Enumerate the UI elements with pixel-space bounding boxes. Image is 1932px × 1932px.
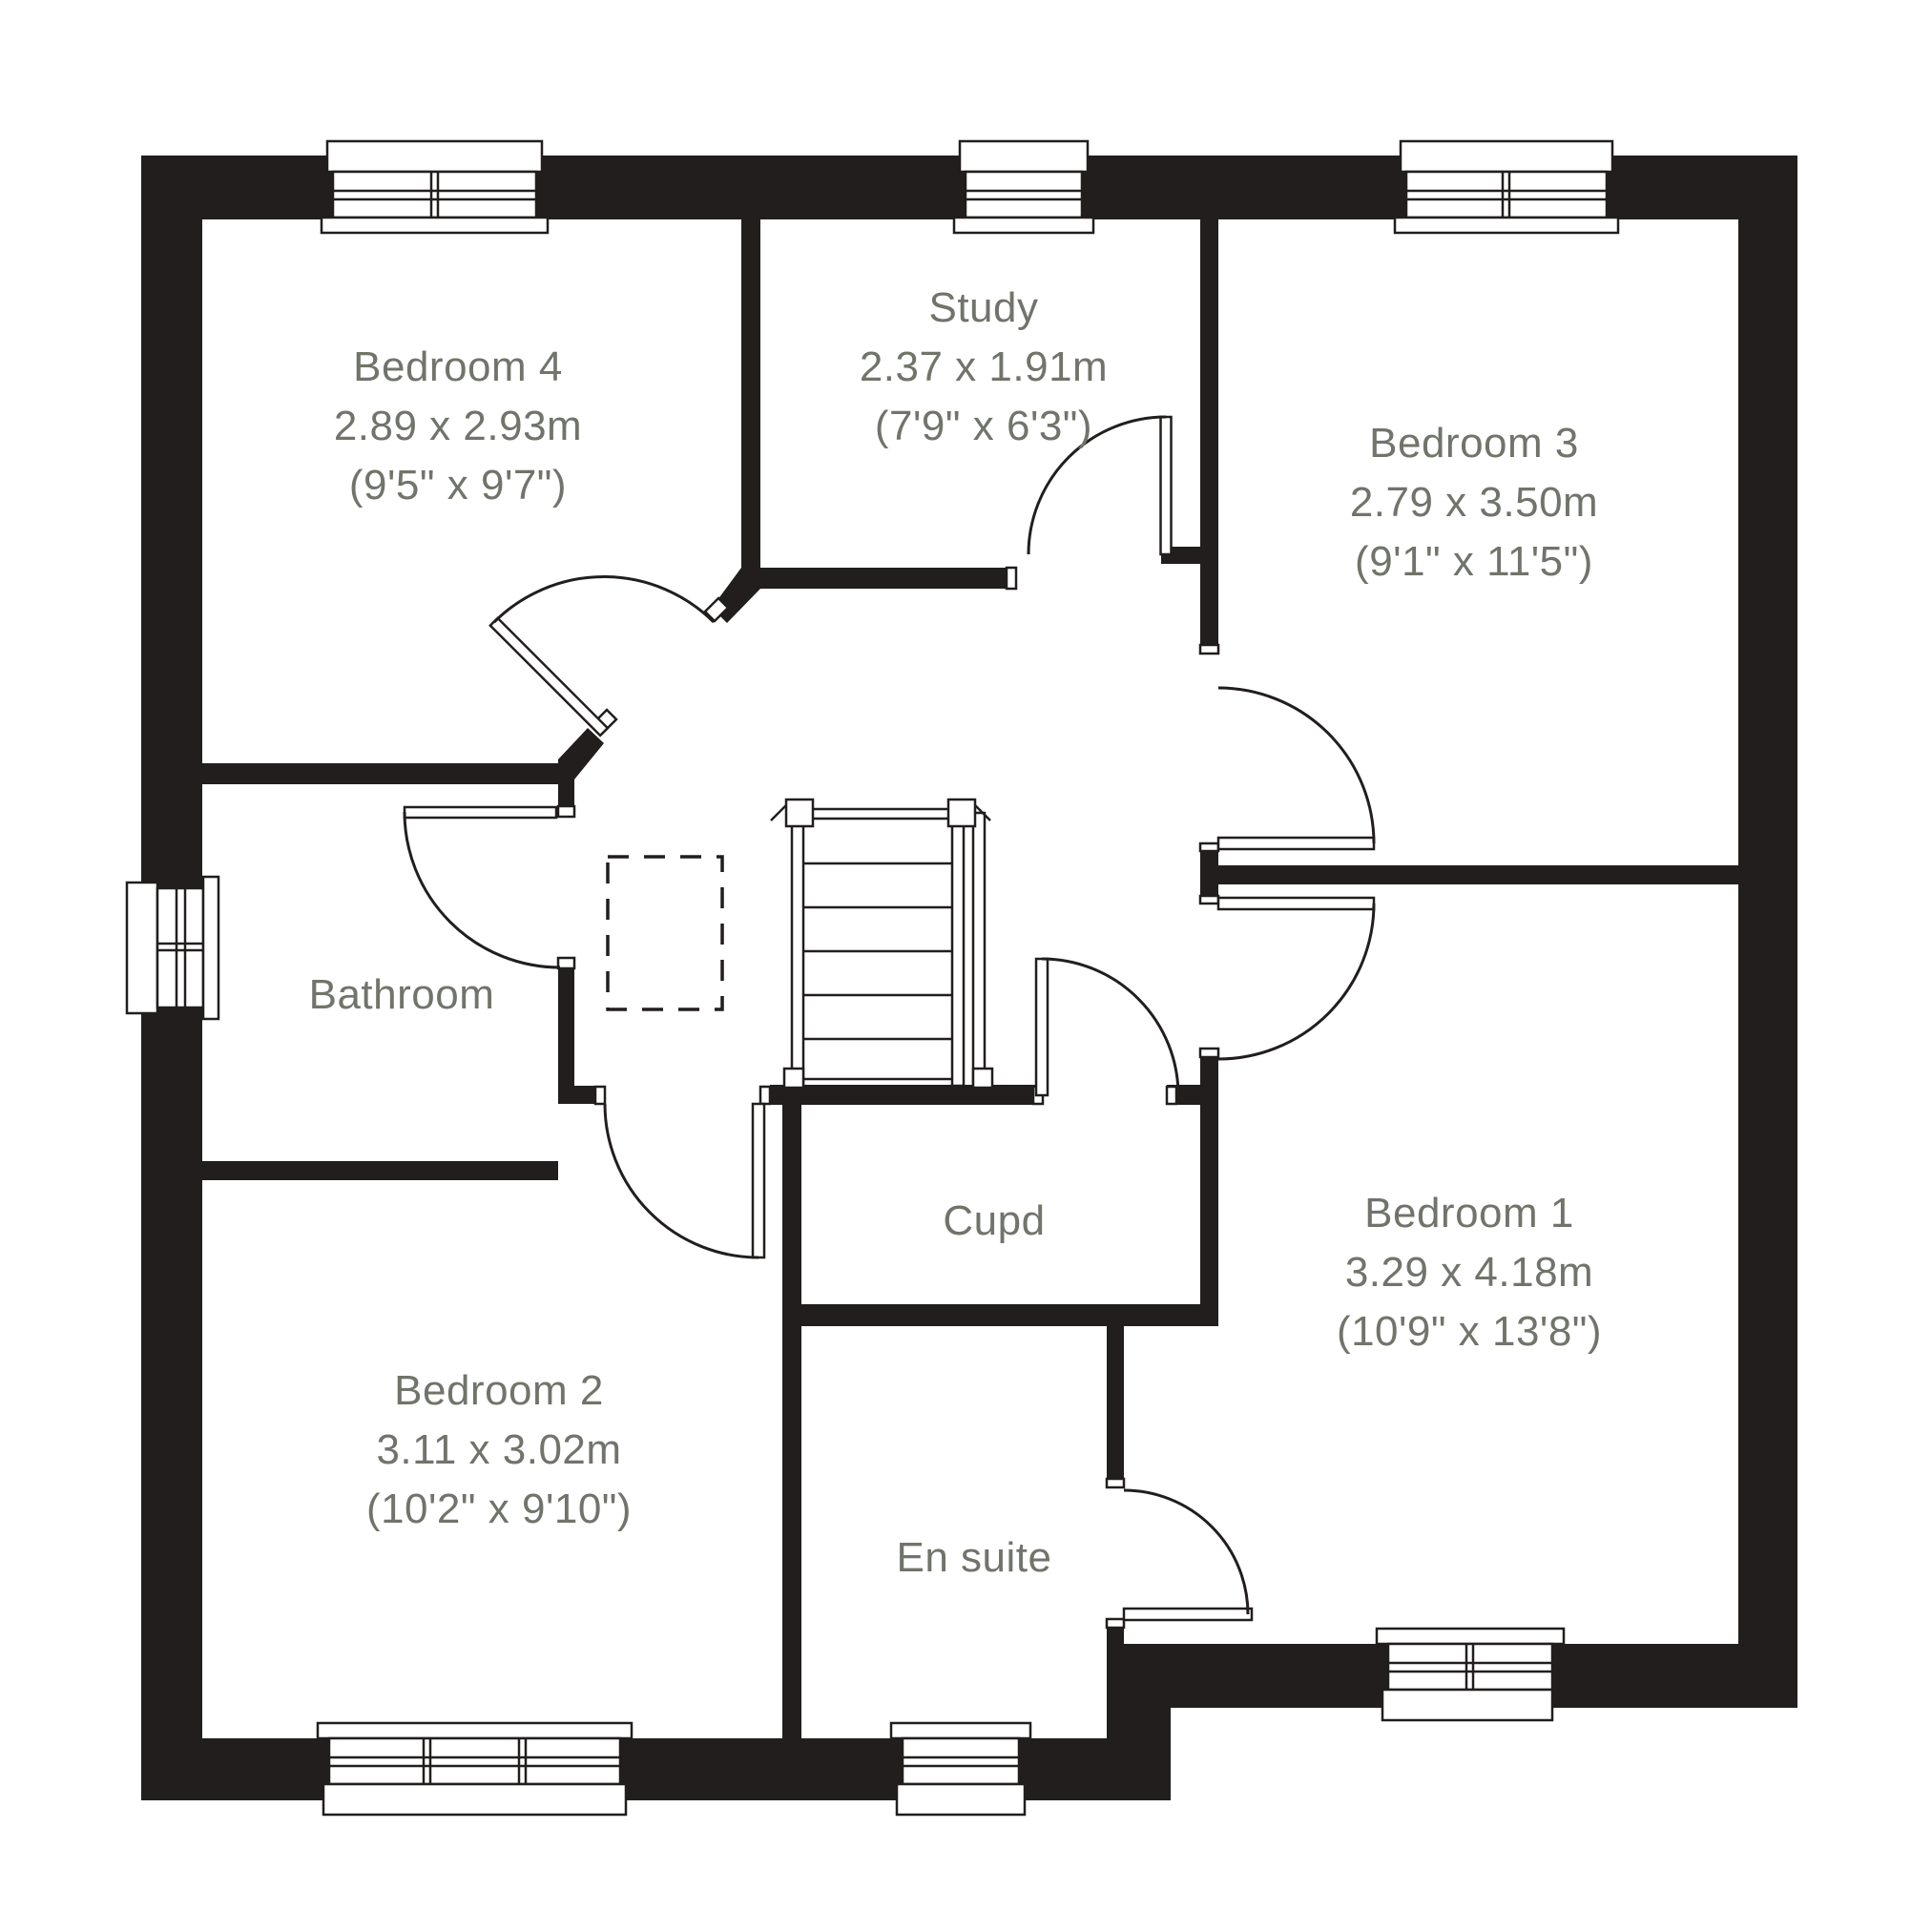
jamb	[1200, 896, 1218, 904]
room-size-imperial: (9'1" x 11'5")	[1350, 532, 1598, 592]
wall-segment	[1200, 865, 1738, 884]
stair-newel	[786, 800, 813, 826]
jamb	[1107, 1479, 1124, 1487]
stair-newel	[973, 1069, 992, 1088]
stair-rail-right-outer	[973, 813, 985, 1086]
room-size-metric: 2.37 x 1.91m	[860, 338, 1108, 397]
window-bedroom2	[318, 1723, 632, 1815]
wall-segment	[741, 568, 1014, 589]
room-label-bathroom: Bathroom	[309, 966, 495, 1025]
door-bedroom4	[490, 577, 714, 736]
door-swing-arc	[405, 812, 560, 967]
door-leaf	[490, 618, 608, 736]
wall-segment	[558, 968, 574, 1104]
jamb	[558, 806, 574, 817]
door-swing-arc	[1218, 688, 1374, 843]
wall-segment	[1200, 219, 1218, 645]
room-name: Bathroom	[309, 966, 495, 1025]
room-size-imperial: (7'9" x 6'3")	[860, 397, 1108, 456]
door-leaf	[1124, 1609, 1252, 1620]
door-bedroom1	[1218, 898, 1374, 1059]
jamb	[595, 1087, 605, 1104]
window-bedroom3	[1395, 141, 1618, 233]
door-ensuite	[1124, 1490, 1252, 1620]
room-size-metric: 3.29 x 4.18m	[1337, 1243, 1602, 1302]
door-bedroom2	[605, 1104, 764, 1257]
window-bedroom1	[1377, 1629, 1564, 1720]
wall-segment	[202, 763, 560, 784]
room-name: Bedroom 2	[366, 1361, 632, 1421]
jamb	[1200, 645, 1218, 654]
wall-segment	[741, 219, 760, 568]
window-bedroom4	[322, 141, 548, 233]
jamb	[1007, 568, 1016, 589]
room-label-bedroom-2: Bedroom 2 3.11 x 3.02m (10'2" x 9'10")	[366, 1361, 632, 1539]
wall-segment	[1200, 1056, 1218, 1326]
wall-segment	[1107, 1619, 1124, 1743]
stair-rail-right	[952, 813, 964, 1086]
staircase	[771, 800, 992, 1088]
jamb	[1107, 1619, 1124, 1628]
wall-segment	[770, 1085, 1035, 1105]
room-name: Bedroom 1	[1337, 1184, 1602, 1243]
room-size-imperial: (9'5" x 9'7")	[334, 456, 582, 515]
dashed-storage-outline	[608, 857, 722, 1009]
chamfer-wall-lower	[558, 728, 604, 779]
room-size-metric: 2.89 x 2.93m	[334, 397, 582, 456]
door-leaf	[1036, 959, 1048, 1095]
jamb	[1167, 1087, 1176, 1104]
room-name: Study	[860, 279, 1108, 338]
door-leaf	[405, 807, 556, 818]
door-leaf	[1218, 838, 1374, 849]
stair-rail-left	[792, 813, 803, 1086]
door-swing-arc	[1042, 959, 1178, 1095]
room-label-study: Study 2.37 x 1.91m (7'9" x 6'3")	[860, 279, 1108, 456]
stair-newel	[948, 800, 975, 826]
floor-plan: Bedroom 4 2.89 x 2.93m (9'5" x 9'7") Stu…	[0, 0, 1932, 1932]
window-ensuite	[891, 1723, 1030, 1815]
wall-segment	[1738, 156, 1797, 1708]
room-name: Bedroom 4	[334, 338, 582, 397]
wall-segment	[1107, 1326, 1124, 1486]
room-name: Cupd	[943, 1192, 1045, 1251]
room-label-cupboard: Cupd	[943, 1192, 1045, 1251]
room-label-bedroom-3: Bedroom 3 2.79 x 3.50m (9'1" x 11'5")	[1350, 414, 1598, 592]
room-label-ensuite: En suite	[897, 1528, 1052, 1588]
jamb	[760, 1087, 770, 1104]
door-swing-arc	[1218, 904, 1374, 1059]
door-leaf	[753, 1104, 764, 1257]
room-size-imperial: (10'9" x 13'8")	[1337, 1302, 1602, 1361]
wall-segment	[202, 1161, 558, 1180]
wall-segment	[782, 1304, 1218, 1326]
door-leaf	[1218, 898, 1374, 909]
jamb	[1200, 1049, 1218, 1057]
jamb	[1200, 843, 1218, 851]
room-label-bedroom-4: Bedroom 4 2.89 x 2.93m (9'5" x 9'7")	[334, 338, 582, 515]
room-name: En suite	[897, 1528, 1052, 1588]
window-bathroom	[127, 877, 218, 1019]
room-size-metric: 3.11 x 3.02m	[366, 1421, 632, 1480]
wall-segment	[782, 1104, 801, 1738]
room-name: Bedroom 3	[1350, 414, 1598, 473]
room-size-metric: 2.79 x 3.50m	[1350, 473, 1598, 532]
door-leaf	[1161, 417, 1172, 554]
jamb	[558, 958, 574, 968]
door-bedroom3	[1218, 688, 1374, 849]
door-swing-arc	[494, 577, 714, 622]
door-bathroom	[405, 807, 560, 967]
door-cupboard	[1036, 959, 1178, 1095]
room-label-bedroom-1: Bedroom 1 3.29 x 4.18m (10'9" x 13'8")	[1337, 1184, 1602, 1361]
door-swing-arc	[1124, 1490, 1248, 1614]
stair-newel	[784, 1069, 803, 1088]
door-swing-arc	[605, 1104, 758, 1257]
window-study	[954, 141, 1093, 233]
room-size-imperial: (10'2" x 9'10")	[366, 1480, 632, 1539]
